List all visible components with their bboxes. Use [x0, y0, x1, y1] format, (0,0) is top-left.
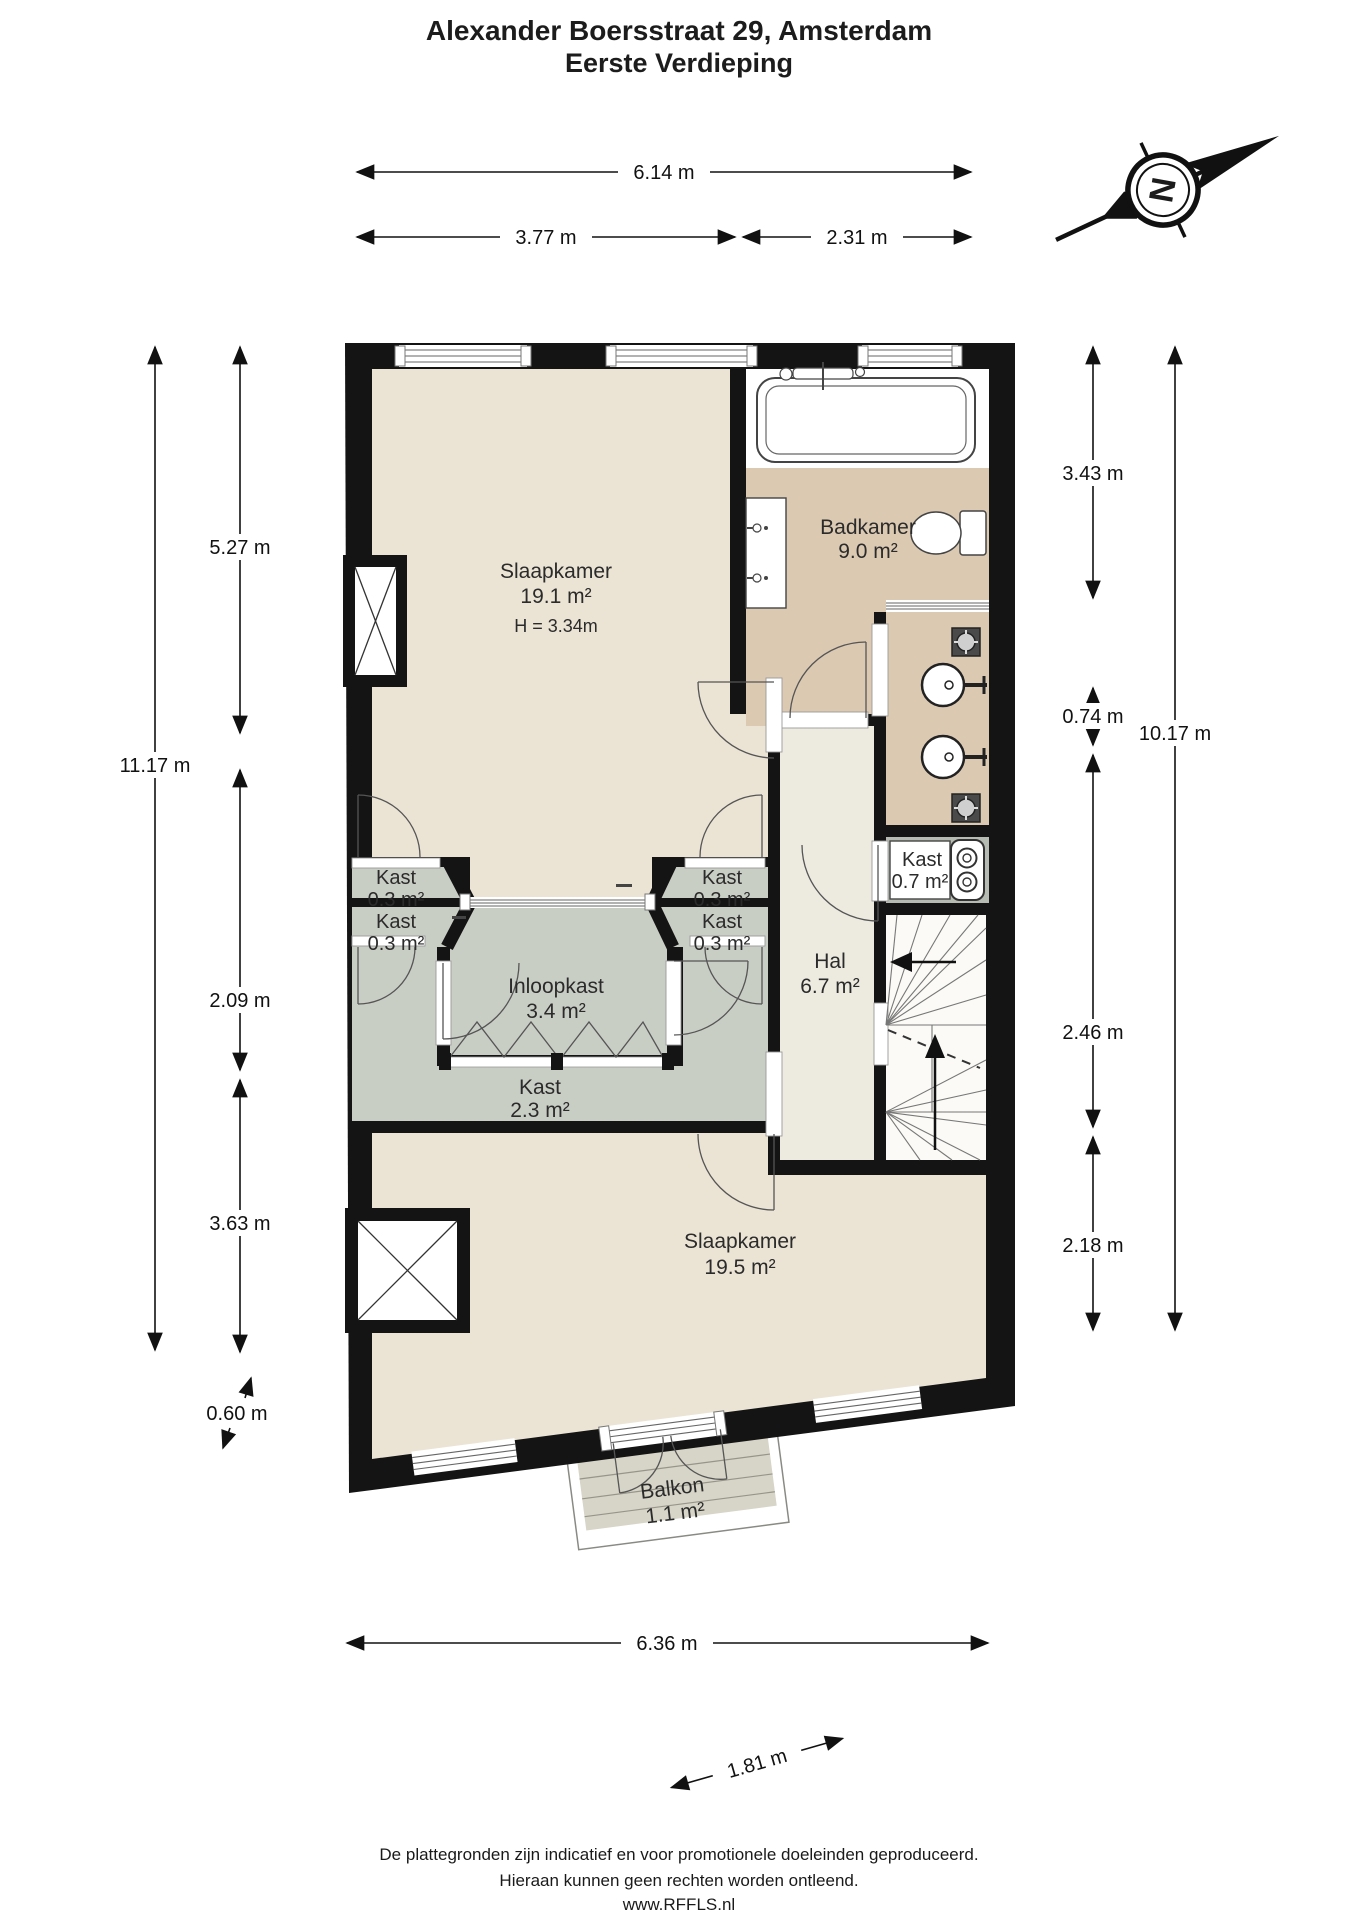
compass-north-icon: N: [1034, 89, 1301, 287]
room-area-inloopkast: 3.4 m²: [526, 1000, 586, 1023]
dim-right-seg4: 2.18 m: [1062, 1235, 1123, 1257]
ceiling-spot-icon: [952, 794, 980, 822]
window-icon: [395, 345, 531, 367]
room-area-slaapkamer-1: 19.1 m²: [520, 585, 591, 608]
room-label-kast23: Kast: [519, 1076, 561, 1099]
room-label-kast07: Kast: [902, 849, 942, 871]
room-area-badkamer: 9.0 m²: [838, 540, 898, 563]
room-area-kast23: 2.3 m²: [510, 1099, 570, 1122]
room-area-kast-tl2: 0.3 m²: [368, 933, 425, 955]
room-label-hal: Hal: [814, 950, 846, 973]
window-icon: [606, 345, 757, 367]
chimney-shaft-icon: [343, 555, 407, 687]
room-hal-floor: [780, 726, 874, 1160]
dim-bottom-total: 6.36 m: [636, 1633, 697, 1655]
toilet-icon: [911, 511, 986, 555]
room-area-kast-tr1: 0.3 m²: [694, 889, 751, 911]
footer-website: www.RFFLS.nl: [622, 1895, 735, 1914]
footer-disclaimer-2: Hieraan kunnen geen rechten worden ontle…: [499, 1871, 858, 1890]
room-height-slaapkamer-1: H = 3.34m: [514, 616, 598, 636]
dim-top-right: 2.31 m: [826, 227, 887, 249]
floor-plan-canvas: Alexander Boersstraat 29, Amsterdam Eers…: [0, 0, 1358, 1920]
room-area-kast07: 0.7 m²: [892, 871, 949, 893]
dim-right-seg2: 0.74 m: [1062, 706, 1123, 728]
room-label-kast-tl1: Kast: [376, 867, 416, 889]
room-label-kast-tr1: Kast: [702, 867, 742, 889]
room-label-slaapkamer-2: Slaapkamer: [684, 1230, 796, 1253]
ceiling-spot-icon: [952, 628, 980, 656]
glazed-partition-icon: [886, 600, 989, 612]
dim-left-seg2: 2.09 m: [209, 990, 270, 1012]
dim-right-outer: 10.17 m: [1139, 723, 1211, 745]
room-label-inloopkast: Inloopkast: [508, 975, 604, 998]
room-label-badkamer: Badkamer: [820, 516, 916, 539]
vanity-sink-icon: [746, 498, 786, 608]
room-label-kast-tl2: Kast: [376, 911, 416, 933]
dim-right-seg3: 2.46 m: [1062, 1022, 1123, 1044]
room-area-kast-tl1: 0.3 m²: [368, 889, 425, 911]
top-windows: [395, 345, 962, 367]
dim-top-total: 6.14 m: [633, 162, 694, 184]
footer-disclaimer-1: De plattegronden zijn indicatief en voor…: [379, 1845, 978, 1864]
bathtub-icon: [757, 362, 975, 462]
room-area-kast-tr2: 0.3 m²: [694, 933, 751, 955]
page-subtitle: Eerste Verdieping: [565, 48, 793, 78]
dim-left-outer: 11.17 m: [120, 755, 191, 777]
chimney-shaft-icon: [345, 1208, 470, 1333]
dim-left-balkon: 0.60 m: [206, 1403, 267, 1425]
page-title: Alexander Boersstraat 29, Amsterdam: [426, 15, 932, 46]
room-area-slaapkamer-2: 19.5 m²: [704, 1256, 775, 1279]
room-label-kast-tr2: Kast: [702, 911, 742, 933]
dim-left-seg1: 5.27 m: [209, 537, 270, 559]
dim-right-seg1: 3.43 m: [1062, 463, 1123, 485]
window-icon: [858, 345, 962, 367]
dim-top-left: 3.77 m: [515, 227, 576, 249]
dim-left-seg3: 3.63 m: [209, 1213, 270, 1235]
room-area-hal: 6.7 m²: [800, 975, 860, 998]
washer-icon: [951, 840, 984, 900]
room-label-slaapkamer-1: Slaapkamer: [500, 560, 612, 583]
